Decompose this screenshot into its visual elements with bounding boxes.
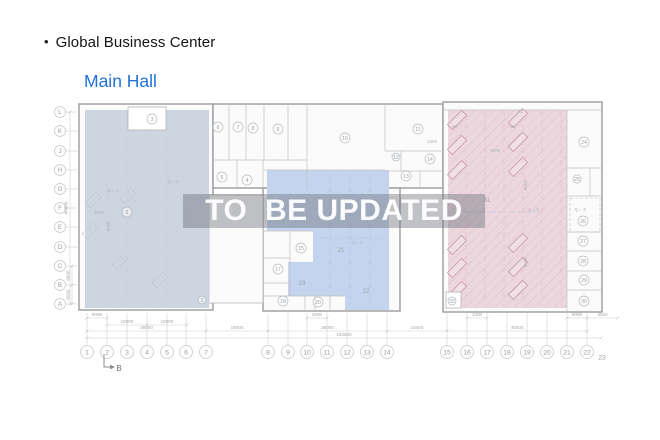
plan-text: 13 [363, 349, 371, 356]
plan-text: 18000 [231, 325, 244, 330]
plan-text: Q = 3 [351, 240, 363, 245]
plan-text: 6000 [523, 256, 528, 267]
plan-text: 6 [217, 125, 220, 131]
plan-text: 10 [342, 136, 348, 142]
plan-text: 18000 [121, 319, 134, 324]
plan-text: 15 [298, 246, 304, 252]
plan-text: 20 [543, 349, 551, 356]
plan-text: 45° [510, 124, 517, 129]
plan-text: 6000 [92, 312, 103, 317]
plan-text: 26 [580, 219, 586, 225]
plan-text: 15 [443, 349, 451, 356]
plan-text: 1 [85, 349, 89, 356]
watermark-band: TO BE UPDATED [183, 194, 485, 228]
plan-text: 7 [237, 125, 240, 131]
plan-text: 6000 [66, 289, 71, 300]
plan-text: 13 [403, 174, 409, 180]
plan-text: 6000 [523, 179, 528, 190]
plan-text: 10 [303, 349, 311, 356]
plan-text: C [58, 263, 63, 270]
plan-text: 22 [583, 349, 591, 356]
plan-text: 1 [201, 298, 204, 304]
bullet-glyph: • [44, 33, 49, 51]
plan-text: 17 [275, 267, 281, 273]
plan-text: 36000 [140, 325, 153, 330]
plan-text: J [58, 148, 61, 155]
plan-text: 27 [580, 239, 586, 245]
plan-text: 8 [266, 349, 270, 356]
plan-text: 7 [204, 349, 208, 356]
plan-text: 28 [580, 259, 586, 265]
plan-text: 45° [452, 124, 459, 129]
plan-text: B [58, 282, 62, 289]
plan-text: 29 [581, 278, 587, 284]
plan-text: Q = 3 [107, 188, 119, 193]
plan-text: 12 [393, 155, 399, 161]
plan-text: 32 [449, 299, 455, 305]
plan-text: 3000 [597, 312, 608, 317]
plan-text: 11 [323, 349, 330, 356]
plan-text: 5000 [106, 220, 111, 231]
plan-text: 9 [277, 127, 280, 133]
plan-text: E [58, 224, 62, 231]
plan-text: B [116, 364, 121, 373]
plan-text: Q = 3 [527, 207, 539, 212]
plan-text: 19 [523, 349, 531, 356]
plan-text: 20 [315, 300, 321, 306]
bullet-item: • Global Business Center [44, 33, 215, 51]
plan-text: 2 [126, 210, 129, 216]
plan-text: 6000 [572, 312, 583, 317]
plan-text: 14 [383, 349, 391, 356]
plan-text: 17 [483, 349, 491, 356]
plan-text: 16 [463, 349, 471, 356]
plan-text: 9 [286, 349, 290, 356]
plan-text: 1300 [427, 139, 438, 144]
plan-text: 3 [151, 117, 154, 123]
plan-text: 14 [427, 157, 433, 163]
slide: 1234567891011121314151718202425262728293… [0, 0, 660, 440]
plan-text: H [58, 167, 62, 174]
plan-text: 4 [246, 178, 249, 184]
plan-text: 12 [343, 349, 351, 356]
plan-text: 36000 [321, 325, 334, 330]
plan-text: 6000 [66, 270, 71, 281]
plan-text: 18 [280, 299, 286, 305]
watermark-text: TO BE UPDATED [205, 194, 463, 228]
plan-text: 45000 [511, 325, 524, 330]
plan-text: Q = 3 [574, 207, 586, 212]
plan-text: 23 [517, 109, 523, 114]
plan-text: 6 [184, 349, 188, 356]
page-title: Global Business Center [56, 34, 216, 51]
plan-text: 21 [338, 248, 345, 254]
plan-text: Q = 3 [167, 179, 179, 184]
plan-text: G [58, 186, 63, 193]
plan-text: L [58, 109, 62, 116]
plan-text: 8 [252, 126, 255, 132]
plan-text: 30 [581, 299, 587, 305]
plan-text: 5 [165, 349, 169, 356]
plan-text: 1300 [472, 312, 483, 317]
plan-text: 2000 [94, 210, 105, 215]
plan-text: D [58, 244, 63, 251]
plan-text: 1900 [490, 148, 501, 153]
plan-text: 4 [145, 349, 149, 356]
plan-text: 19 [299, 281, 306, 287]
plan-text: 153600 [336, 332, 352, 337]
plan-text: 11 [415, 127, 420, 133]
plan-text: F [58, 205, 62, 212]
plan-text: 21 [563, 349, 571, 356]
plan-text: 18400 [411, 325, 424, 330]
section-arrow-icon [110, 365, 115, 370]
plan-text: 23 [598, 354, 606, 361]
subtitle-main-hall: Main Hall [84, 71, 157, 92]
plan-text: 2 [105, 349, 109, 356]
plan-text: 2000 [312, 312, 323, 317]
plan-text: 18 [503, 349, 511, 356]
plan-text: 25 [574, 177, 580, 183]
plan-text: 18000 [161, 319, 174, 324]
plan-text: 5 [221, 175, 224, 181]
plan-text: 22 [363, 289, 370, 295]
plan-text: 60000 [64, 201, 69, 214]
plan-text: 3 [125, 349, 129, 356]
plan-text: 24 [581, 140, 587, 146]
